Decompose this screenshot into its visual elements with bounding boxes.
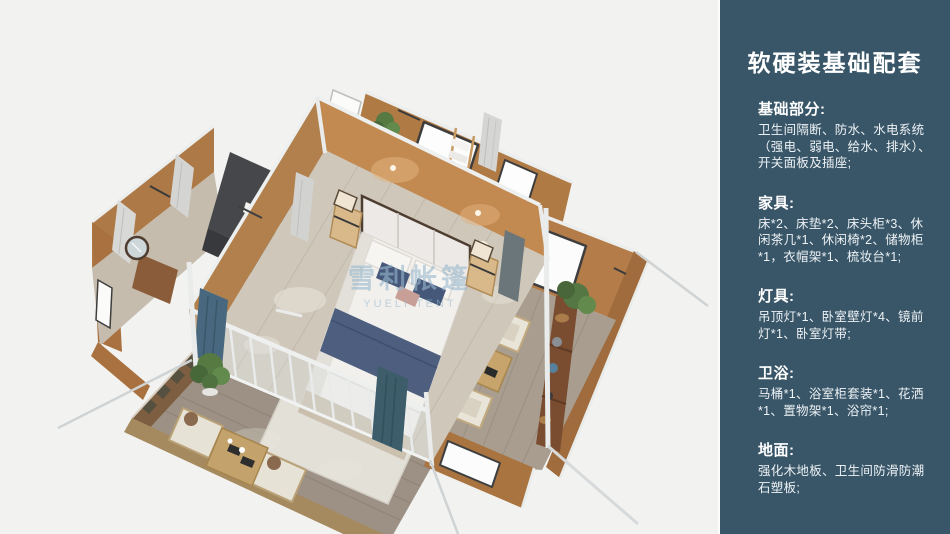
section-flooring: 地面: 强化木地板、卫生间防滑防潮石塑板; bbox=[758, 439, 932, 496]
section-heading: 灯具: bbox=[758, 285, 932, 306]
section-body: 卫生间隔断、防水、水电系统（强电、弱电、给水、排水）、开关面板及插座; bbox=[758, 122, 932, 172]
watermark-cn: 雪利帐篷 bbox=[348, 263, 472, 294]
slide: 雪利帐篷 YUELI TENT 软硬装基础配套 基础部分: 卫生间隔断、防水、水… bbox=[0, 0, 950, 534]
section-body: 床*2、床垫*2、床头柜*3、休闲茶几*1、休闲椅*2、储物柜*1，衣帽架*1、… bbox=[758, 216, 932, 266]
watermark-en: YUELI TENT bbox=[363, 298, 456, 310]
section-body: 强化木地板、卫生间防滑防潮石塑板; bbox=[758, 463, 932, 496]
section-heading: 卫浴: bbox=[758, 362, 932, 383]
panel-title: 软硬装基础配套 bbox=[726, 44, 944, 78]
section-furniture: 家具: 床*2、床垫*2、床头柜*3、休闲茶几*1、休闲椅*2、储物柜*1，衣帽… bbox=[758, 192, 932, 266]
info-panel: 软硬装基础配套 基础部分: 卫生间隔断、防水、水电系统（强电、弱电、给水、排水）… bbox=[718, 0, 950, 534]
watermark: 雪利帐篷 YUELI TENT bbox=[348, 263, 472, 310]
section-heading: 地面: bbox=[758, 439, 932, 460]
section-heading: 家具: bbox=[758, 192, 932, 213]
floorplan-svg: 雪利帐篷 YUELI TENT bbox=[0, 0, 718, 534]
section-lighting: 灯具: 吊顶灯*1、卧室壁灯*4、镜前灯*1、卧室灯带; bbox=[758, 285, 932, 342]
floorplan-render: 雪利帐篷 YUELI TENT bbox=[0, 0, 718, 534]
panel-sections: 基础部分: 卫生间隔断、防水、水电系统（强电、弱电、给水、排水）、开关面板及插座… bbox=[720, 98, 950, 496]
section-basics: 基础部分: 卫生间隔断、防水、水电系统（强电、弱电、给水、排水）、开关面板及插座… bbox=[758, 98, 932, 172]
section-bathroom: 卫浴: 马桶*1、浴室柜套装*1、花洒*1、置物架*1、浴帘*1; bbox=[758, 362, 932, 419]
section-body: 马桶*1、浴室柜套装*1、花洒*1、置物架*1、浴帘*1; bbox=[758, 386, 932, 419]
section-body: 吊顶灯*1、卧室壁灯*4、镜前灯*1、卧室灯带; bbox=[758, 309, 932, 342]
section-heading: 基础部分: bbox=[758, 98, 932, 119]
